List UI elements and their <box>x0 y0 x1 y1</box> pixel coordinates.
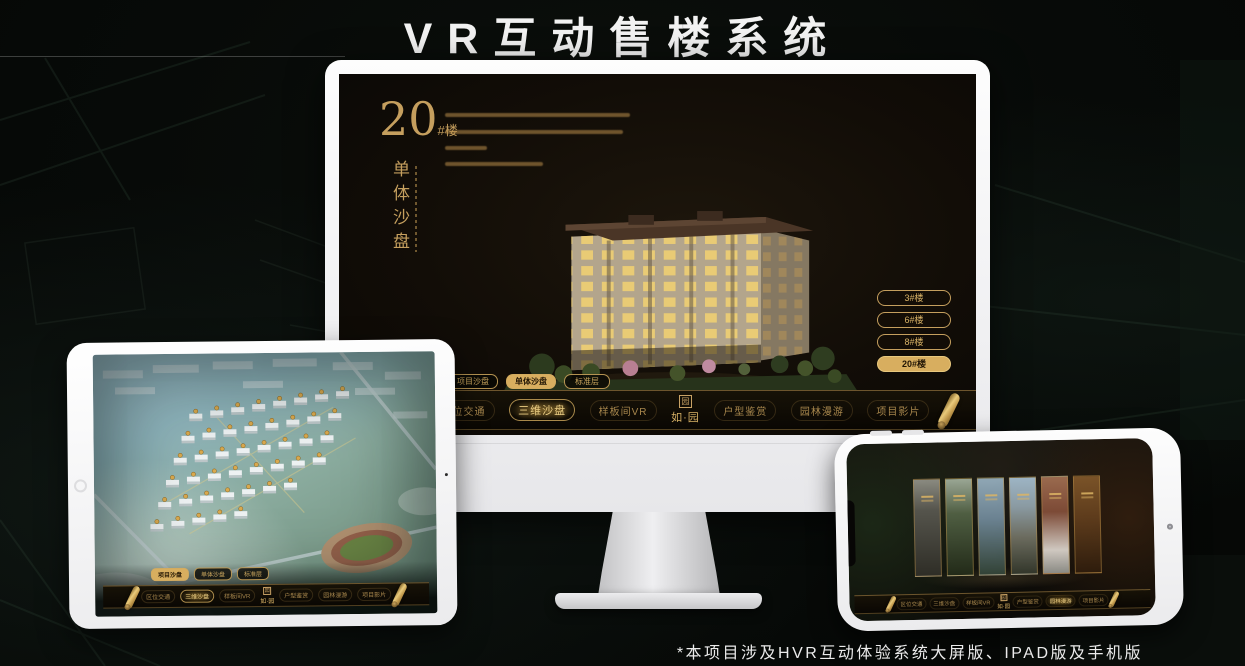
scroll-right-icon[interactable] <box>937 392 962 429</box>
floor-button-20[interactable]: 20#楼 <box>877 356 951 372</box>
tab-project-sandtable[interactable]: 项目沙盘 <box>151 568 189 581</box>
hero-number: 20 <box>379 92 438 146</box>
scroll-right-icon[interactable] <box>391 582 408 607</box>
floor-button-3[interactable]: 3#楼 <box>877 290 951 306</box>
hero-english-caption <box>415 166 417 252</box>
nav-item-location[interactable]: 区位交通 <box>896 597 926 610</box>
gallery-panel[interactable] <box>1073 475 1102 574</box>
hero-block: 20#楼 <box>379 96 458 142</box>
volume-button[interactable] <box>870 430 892 435</box>
nav-item-garden-roam[interactable]: 园林漫游 <box>1046 594 1076 607</box>
brand-logo-icon: 园 <box>679 395 692 408</box>
nav-item-floorplans[interactable]: 户型鉴赏 <box>279 588 313 601</box>
phone-nav-bar: 区位交通 三维沙盘 样板间VR 园 如·园 户型鉴赏 园林漫游 项目影片 <box>854 589 1150 614</box>
brand-logo: 园 如·园 <box>671 395 700 425</box>
page-title: VR互动售楼系统 <box>0 4 1245 66</box>
gallery-panels <box>913 475 1102 577</box>
gallery-panel[interactable] <box>977 477 1006 576</box>
description-line <box>445 113 630 117</box>
nav-item-3d-sandtable[interactable]: 三维沙盘 <box>509 399 575 421</box>
tablet-nav-bar: 区位交通 三维沙盘 样板间VR 园 如·园 户型鉴赏 园林漫游 项目影片 <box>103 582 429 608</box>
phone-screen: 区位交通 三维沙盘 样板间VR 园 如·园 户型鉴赏 园林漫游 项目影片 <box>846 438 1156 621</box>
brand-logo: 园 如·园 <box>997 593 1010 609</box>
tab-single-sandtable[interactable]: 单体沙盘 <box>194 567 232 580</box>
nav-item-location[interactable]: 区位交通 <box>141 590 175 603</box>
floor-button-8[interactable]: 8#楼 <box>877 334 951 350</box>
nav-item-garden-roam[interactable]: 园林漫游 <box>318 588 352 601</box>
scroll-left-icon[interactable] <box>124 585 141 610</box>
nav-item-project-film[interactable]: 项目影片 <box>1078 593 1108 606</box>
gallery-panel[interactable] <box>1041 476 1070 575</box>
tablet-sub-tabs: 项目沙盘 单体沙盘 标准层 <box>151 567 269 581</box>
floor-button-group: 3#楼 6#楼 8#楼 20#楼 <box>877 290 951 372</box>
nav-item-garden-roam[interactable]: 园林漫游 <box>791 400 853 421</box>
tab-standard-floor[interactable]: 标准层 <box>237 567 269 580</box>
footnote: *本项目涉及HVR互动体验系统大屏版、IPAD版及手机版 <box>677 639 1143 663</box>
gallery-panel[interactable] <box>913 478 942 577</box>
brand-logo-text: 如·园 <box>997 601 1010 609</box>
nav-item-floorplans[interactable]: 户型鉴赏 <box>1013 595 1043 608</box>
nav-item-project-film[interactable]: 项目影片 <box>357 588 391 601</box>
brand-logo-icon: 园 <box>1000 594 1007 601</box>
description-line <box>445 146 487 150</box>
tablet-screen: 项目沙盘 单体沙盘 标准层 区位交通 三维沙盘 样板间VR 园 如·园 户型鉴赏… <box>93 351 438 617</box>
description-line <box>445 130 623 134</box>
monitor-stand-neck <box>598 512 720 596</box>
nav-item-floorplans[interactable]: 户型鉴赏 <box>714 400 776 421</box>
monitor-sub-tabs: 项目沙盘 单体沙盘 标准层 <box>448 374 610 389</box>
home-button[interactable] <box>74 479 87 492</box>
brand-logo-text: 如·园 <box>260 595 274 604</box>
scroll-right-icon[interactable] <box>1108 591 1120 609</box>
nav-item-showroom-vr[interactable]: 样板间VR <box>590 400 657 421</box>
camera-icon <box>1167 523 1173 529</box>
hero-title-vertical: 单体沙盘 <box>387 160 412 256</box>
volume-button[interactable] <box>902 430 924 435</box>
nav-item-3d-sandtable[interactable]: 三维沙盘 <box>929 597 959 610</box>
brand-logo: 园 如·园 <box>260 586 274 604</box>
nav-item-project-film[interactable]: 项目影片 <box>867 400 929 421</box>
gallery-panel[interactable] <box>945 478 974 577</box>
scroll-left-icon[interactable] <box>885 595 897 613</box>
brand-logo-icon: 园 <box>263 586 271 594</box>
brand-logo-text: 如·园 <box>671 409 700 425</box>
camera-icon <box>445 473 448 476</box>
tab-project-sandtable[interactable]: 项目沙盘 <box>448 374 498 389</box>
tab-standard-floor[interactable]: 标准层 <box>564 374 610 389</box>
nav-item-showroom-vr[interactable]: 样板间VR <box>219 589 255 602</box>
tab-single-sandtable[interactable]: 单体沙盘 <box>506 374 556 389</box>
nav-item-3d-sandtable[interactable]: 三维沙盘 <box>180 590 214 603</box>
tablet-mockup: 项目沙盘 单体沙盘 标准层 区位交通 三维沙盘 样板间VR 园 如·园 户型鉴赏… <box>67 339 458 629</box>
phone-mockup: 区位交通 三维沙盘 样板间VR 园 如·园 户型鉴赏 园林漫游 项目影片 <box>834 427 1184 631</box>
gallery-panel[interactable] <box>1009 476 1038 575</box>
monitor-stand-base <box>555 593 762 609</box>
nav-item-showroom-vr[interactable]: 样板间VR <box>962 596 994 609</box>
floor-button-6[interactable]: 6#楼 <box>877 312 951 328</box>
notch <box>847 500 855 566</box>
